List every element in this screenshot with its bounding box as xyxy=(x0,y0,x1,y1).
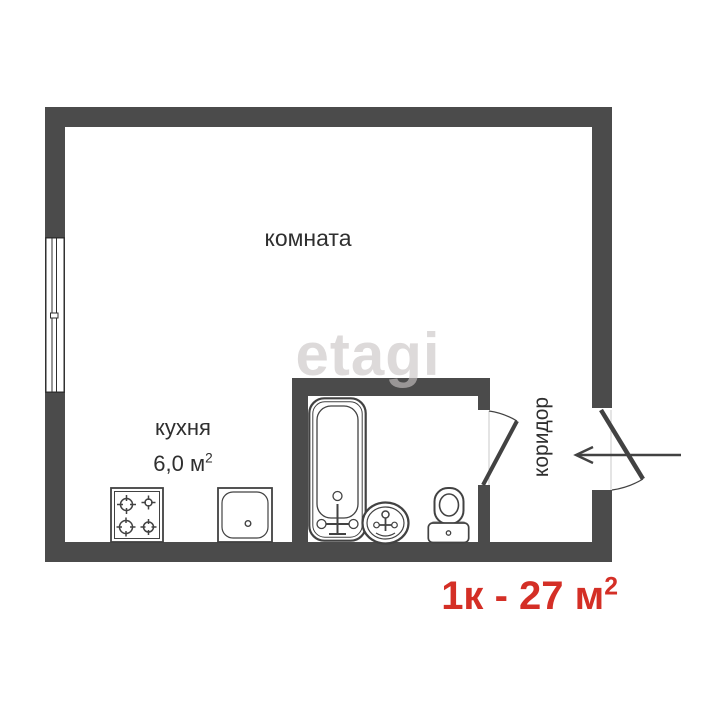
room-label-kitchen: кухня xyxy=(108,415,258,440)
watermark: etagi xyxy=(278,320,458,389)
floorplan: комната кухня 6,0 м2 коридор etagi 1к - … xyxy=(0,0,725,725)
room-label-corridor: коридор xyxy=(530,382,554,492)
bathroom-door-icon xyxy=(483,411,517,485)
kitchen-area-label: 6,0 м2 xyxy=(108,451,258,476)
room-label-living: комната xyxy=(233,225,383,251)
entrance-door-icon xyxy=(601,410,643,490)
apartment-caption: 1к - 27 м2 xyxy=(420,574,618,619)
entrance-arrow-icon xyxy=(576,447,681,463)
